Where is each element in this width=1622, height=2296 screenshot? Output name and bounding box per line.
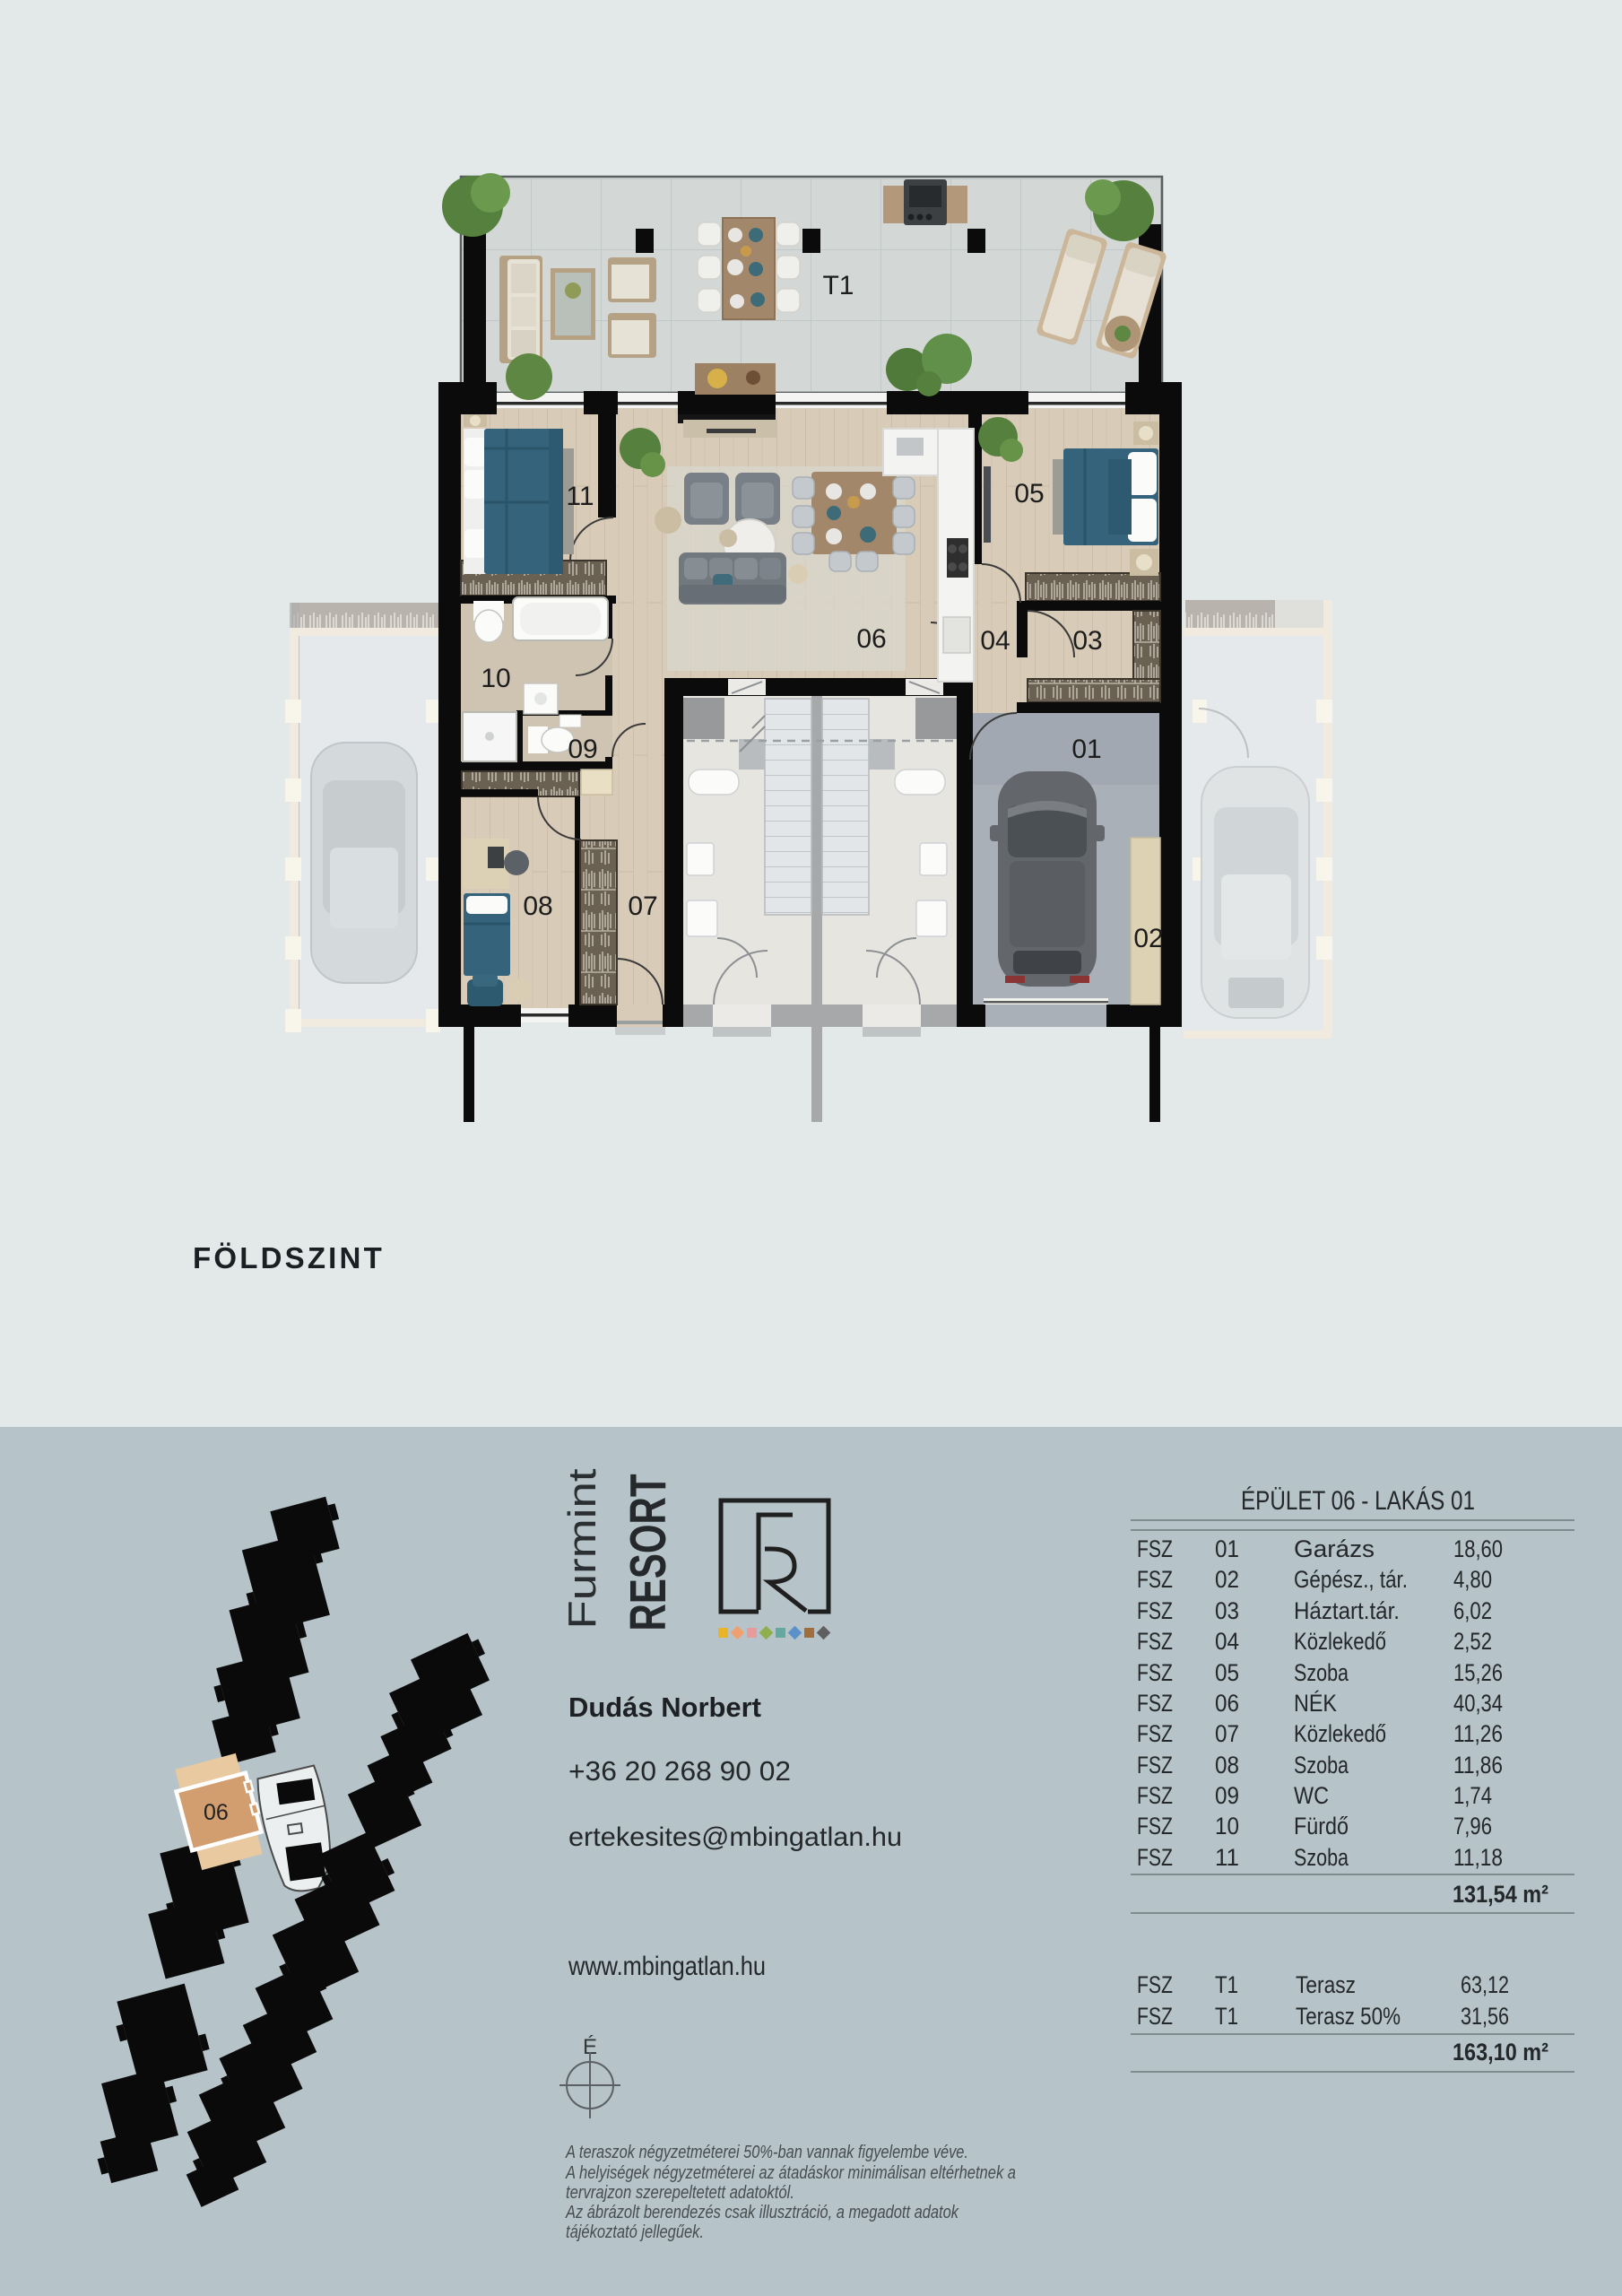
svg-text:WC: WC bbox=[1294, 1782, 1329, 1809]
svg-text:tájékoztató jellegűek.: tájékoztató jellegűek. bbox=[566, 2222, 704, 2242]
svg-text:03: 03 bbox=[1215, 1597, 1239, 1624]
svg-text:Terasz 50%: Terasz 50% bbox=[1296, 2003, 1401, 2030]
svg-text:T1: T1 bbox=[1215, 2003, 1238, 2030]
svg-text:08: 08 bbox=[523, 891, 552, 921]
svg-text:11: 11 bbox=[566, 482, 594, 511]
svg-text:11,86: 11,86 bbox=[1453, 1752, 1503, 1779]
svg-text:Közlekedő: Közlekedő bbox=[1294, 1720, 1386, 1747]
svg-text:FSZ: FSZ bbox=[1137, 1659, 1173, 1686]
svg-text:T1: T1 bbox=[822, 271, 854, 300]
svg-text:Szoba: Szoba bbox=[1294, 1659, 1349, 1686]
svg-text:A helyiségek négyzetméterei az: A helyiségek négyzetméterei az átadáskor… bbox=[565, 2163, 1016, 2183]
svg-text:01: 01 bbox=[1071, 735, 1101, 764]
svg-text:T1: T1 bbox=[1215, 1971, 1238, 1998]
svg-text:06: 06 bbox=[1215, 1690, 1239, 1717]
svg-text:11,18: 11,18 bbox=[1453, 1844, 1503, 1871]
svg-text:01: 01 bbox=[1215, 1535, 1239, 1562]
svg-text:Gépész., tár.: Gépész., tár. bbox=[1294, 1566, 1408, 1593]
svg-text:40,34: 40,34 bbox=[1453, 1690, 1503, 1717]
svg-text:31,56: 31,56 bbox=[1461, 2003, 1509, 2030]
svg-text:10: 10 bbox=[1215, 1813, 1239, 1839]
svg-text:Az ábrázolt berendezés csak il: Az ábrázolt berendezés csak illusztráció… bbox=[565, 2203, 959, 2222]
svg-text:04: 04 bbox=[1215, 1628, 1239, 1655]
svg-text:07: 07 bbox=[1215, 1720, 1239, 1747]
svg-text:Terasz: Terasz bbox=[1296, 1971, 1356, 1998]
svg-text:Szoba: Szoba bbox=[1294, 1752, 1349, 1779]
svg-text:FSZ: FSZ bbox=[1137, 1566, 1173, 1593]
svg-text:FSZ: FSZ bbox=[1137, 1971, 1173, 1998]
svg-text:1,74: 1,74 bbox=[1453, 1782, 1492, 1809]
svg-text:Háztart.tár.: Háztart.tár. bbox=[1294, 1597, 1400, 1624]
svg-text:ertekesites@mbingatlan.hu: ertekesites@mbingatlan.hu bbox=[568, 1822, 902, 1852]
svg-text:06: 06 bbox=[856, 624, 886, 654]
svg-text:FSZ: FSZ bbox=[1137, 1752, 1173, 1779]
svg-text:+36 20 268 90 02: +36 20 268 90 02 bbox=[568, 1755, 791, 1787]
svg-text:06: 06 bbox=[204, 1800, 229, 1825]
svg-text:08: 08 bbox=[1215, 1752, 1239, 1779]
svg-text:11: 11 bbox=[1215, 1844, 1239, 1871]
svg-text:FSZ: FSZ bbox=[1137, 1628, 1173, 1655]
svg-text:Fürdő: Fürdő bbox=[1294, 1813, 1349, 1839]
svg-text:Garázs: Garázs bbox=[1294, 1535, 1375, 1562]
svg-text:03: 03 bbox=[1072, 626, 1102, 656]
svg-text:FSZ: FSZ bbox=[1137, 1720, 1173, 1747]
svg-text:07: 07 bbox=[628, 891, 657, 921]
svg-text:05: 05 bbox=[1215, 1659, 1239, 1686]
svg-text:Dudás Norbert: Dudás Norbert bbox=[568, 1692, 761, 1723]
svg-text:Szoba: Szoba bbox=[1294, 1844, 1349, 1871]
svg-text:10: 10 bbox=[481, 664, 510, 693]
svg-text:18,60: 18,60 bbox=[1453, 1535, 1503, 1562]
svg-text:FSZ: FSZ bbox=[1137, 1535, 1173, 1562]
svg-text:04: 04 bbox=[980, 626, 1010, 656]
svg-text:FSZ: FSZ bbox=[1137, 1844, 1173, 1871]
svg-text:tervrajzon szerepeltetett adat: tervrajzon szerepeltetett adatoktól. bbox=[566, 2183, 794, 2203]
svg-text:Közlekedő: Közlekedő bbox=[1294, 1628, 1386, 1655]
svg-text:A teraszok négyzetméterei 50%-: A teraszok négyzetméterei 50%-ban vannak… bbox=[565, 2143, 968, 2162]
svg-text:FSZ: FSZ bbox=[1137, 1690, 1173, 1717]
svg-text:7,96: 7,96 bbox=[1453, 1813, 1492, 1839]
svg-text:63,12: 63,12 bbox=[1461, 1971, 1509, 1998]
svg-text:NÉK: NÉK bbox=[1294, 1690, 1337, 1717]
svg-text:FSZ: FSZ bbox=[1137, 1813, 1173, 1839]
svg-text:FSZ: FSZ bbox=[1137, 1597, 1173, 1624]
svg-text:163,10 m²: 163,10 m² bbox=[1453, 2039, 1548, 2066]
svg-text:11,26: 11,26 bbox=[1453, 1720, 1503, 1747]
svg-text:09: 09 bbox=[568, 735, 597, 764]
svg-text:RESORT: RESORT bbox=[620, 1474, 677, 1631]
svg-text:05: 05 bbox=[1014, 479, 1044, 509]
svg-text:6,02: 6,02 bbox=[1453, 1597, 1492, 1624]
svg-text:www.mbingatlan.hu: www.mbingatlan.hu bbox=[568, 1952, 766, 1981]
svg-text:09: 09 bbox=[1215, 1782, 1239, 1809]
svg-text:Furmint: Furmint bbox=[560, 1469, 604, 1630]
svg-text:4,80: 4,80 bbox=[1453, 1566, 1492, 1593]
svg-text:15,26: 15,26 bbox=[1453, 1659, 1503, 1686]
svg-text:02: 02 bbox=[1215, 1566, 1239, 1593]
svg-text:2,52: 2,52 bbox=[1453, 1628, 1492, 1655]
svg-text:FSZ: FSZ bbox=[1137, 2003, 1173, 2030]
svg-text:ÉPÜLET 06 - LAKÁS 01: ÉPÜLET 06 - LAKÁS 01 bbox=[1241, 1486, 1475, 1516]
svg-text:FSZ: FSZ bbox=[1137, 1782, 1173, 1809]
svg-text:131,54 m²: 131,54 m² bbox=[1453, 1881, 1548, 1908]
svg-text:02: 02 bbox=[1133, 924, 1163, 953]
